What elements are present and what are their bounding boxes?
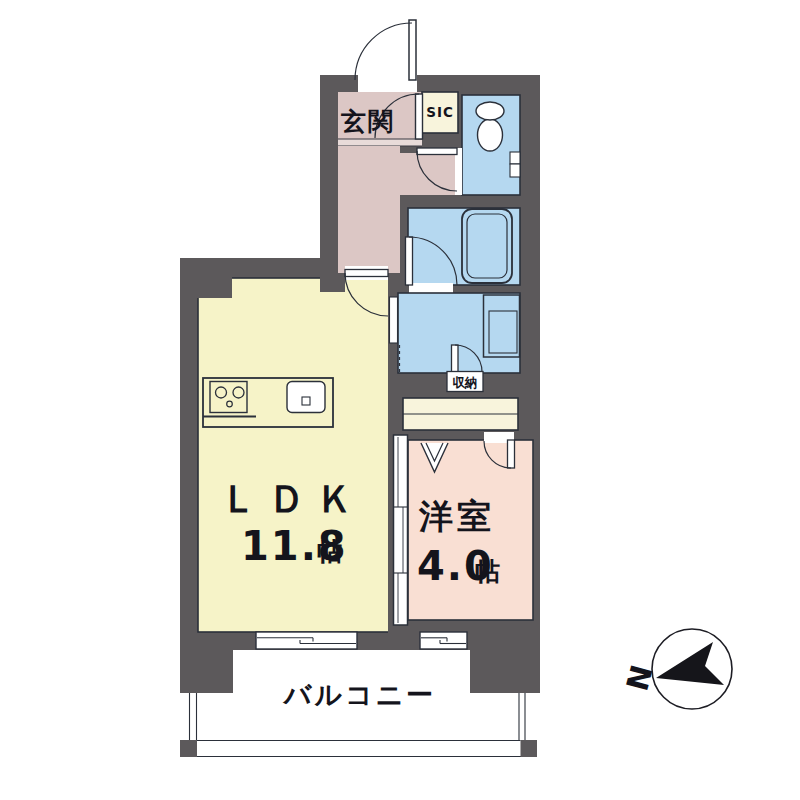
bath-door-leaf xyxy=(406,237,413,285)
storage-label-box: 収納 xyxy=(447,372,483,392)
balcony-corner-right xyxy=(521,740,538,757)
entrance-step xyxy=(338,139,422,146)
storage-label: 収納 xyxy=(453,375,478,390)
washroom-door-leaf xyxy=(452,345,459,372)
room-ldk xyxy=(180,258,395,632)
entrance-door xyxy=(355,20,416,80)
kitchen-counter xyxy=(203,378,333,427)
western-door-leaf xyxy=(508,440,515,468)
toilet-door-leaf xyxy=(417,148,457,155)
ldk-label: ＬＤＫ xyxy=(220,477,364,521)
hall-ldk-door-leaf xyxy=(345,270,388,277)
closet xyxy=(403,398,518,430)
ldk-size-unit: 帖 xyxy=(317,537,342,566)
ldk-corner-notch-wall xyxy=(180,258,232,298)
toilet-bowl xyxy=(478,119,503,151)
balcony-label: バルコニー xyxy=(282,679,437,710)
room-washroom xyxy=(390,293,521,373)
western-window xyxy=(420,632,467,649)
compass: N xyxy=(619,629,732,709)
ldk-window xyxy=(256,632,357,649)
sic-label: SIC xyxy=(426,104,454,120)
washroom-shelf xyxy=(390,297,398,343)
balcony-wall-right xyxy=(470,648,540,693)
room-bath xyxy=(406,208,521,295)
toilet-tank xyxy=(476,102,504,120)
floor-plan: 収納 xyxy=(0,0,800,800)
sink-drain xyxy=(302,397,310,405)
toilet-shelf-upper xyxy=(510,152,520,164)
western-room-size-unit: 帖 xyxy=(475,557,500,586)
balcony-corner-left xyxy=(180,740,197,757)
balcony-wall-left xyxy=(180,648,233,693)
entrance-label: 玄関 xyxy=(340,107,395,136)
toilet-shelf-lower xyxy=(510,164,520,177)
sliding-partition xyxy=(394,435,408,625)
sic-door-leaf xyxy=(416,94,423,139)
entrance-doorway-gap xyxy=(358,75,417,93)
floor-plan-page: 収納 xyxy=(0,0,800,800)
western-room-label: 洋室 xyxy=(418,496,495,536)
